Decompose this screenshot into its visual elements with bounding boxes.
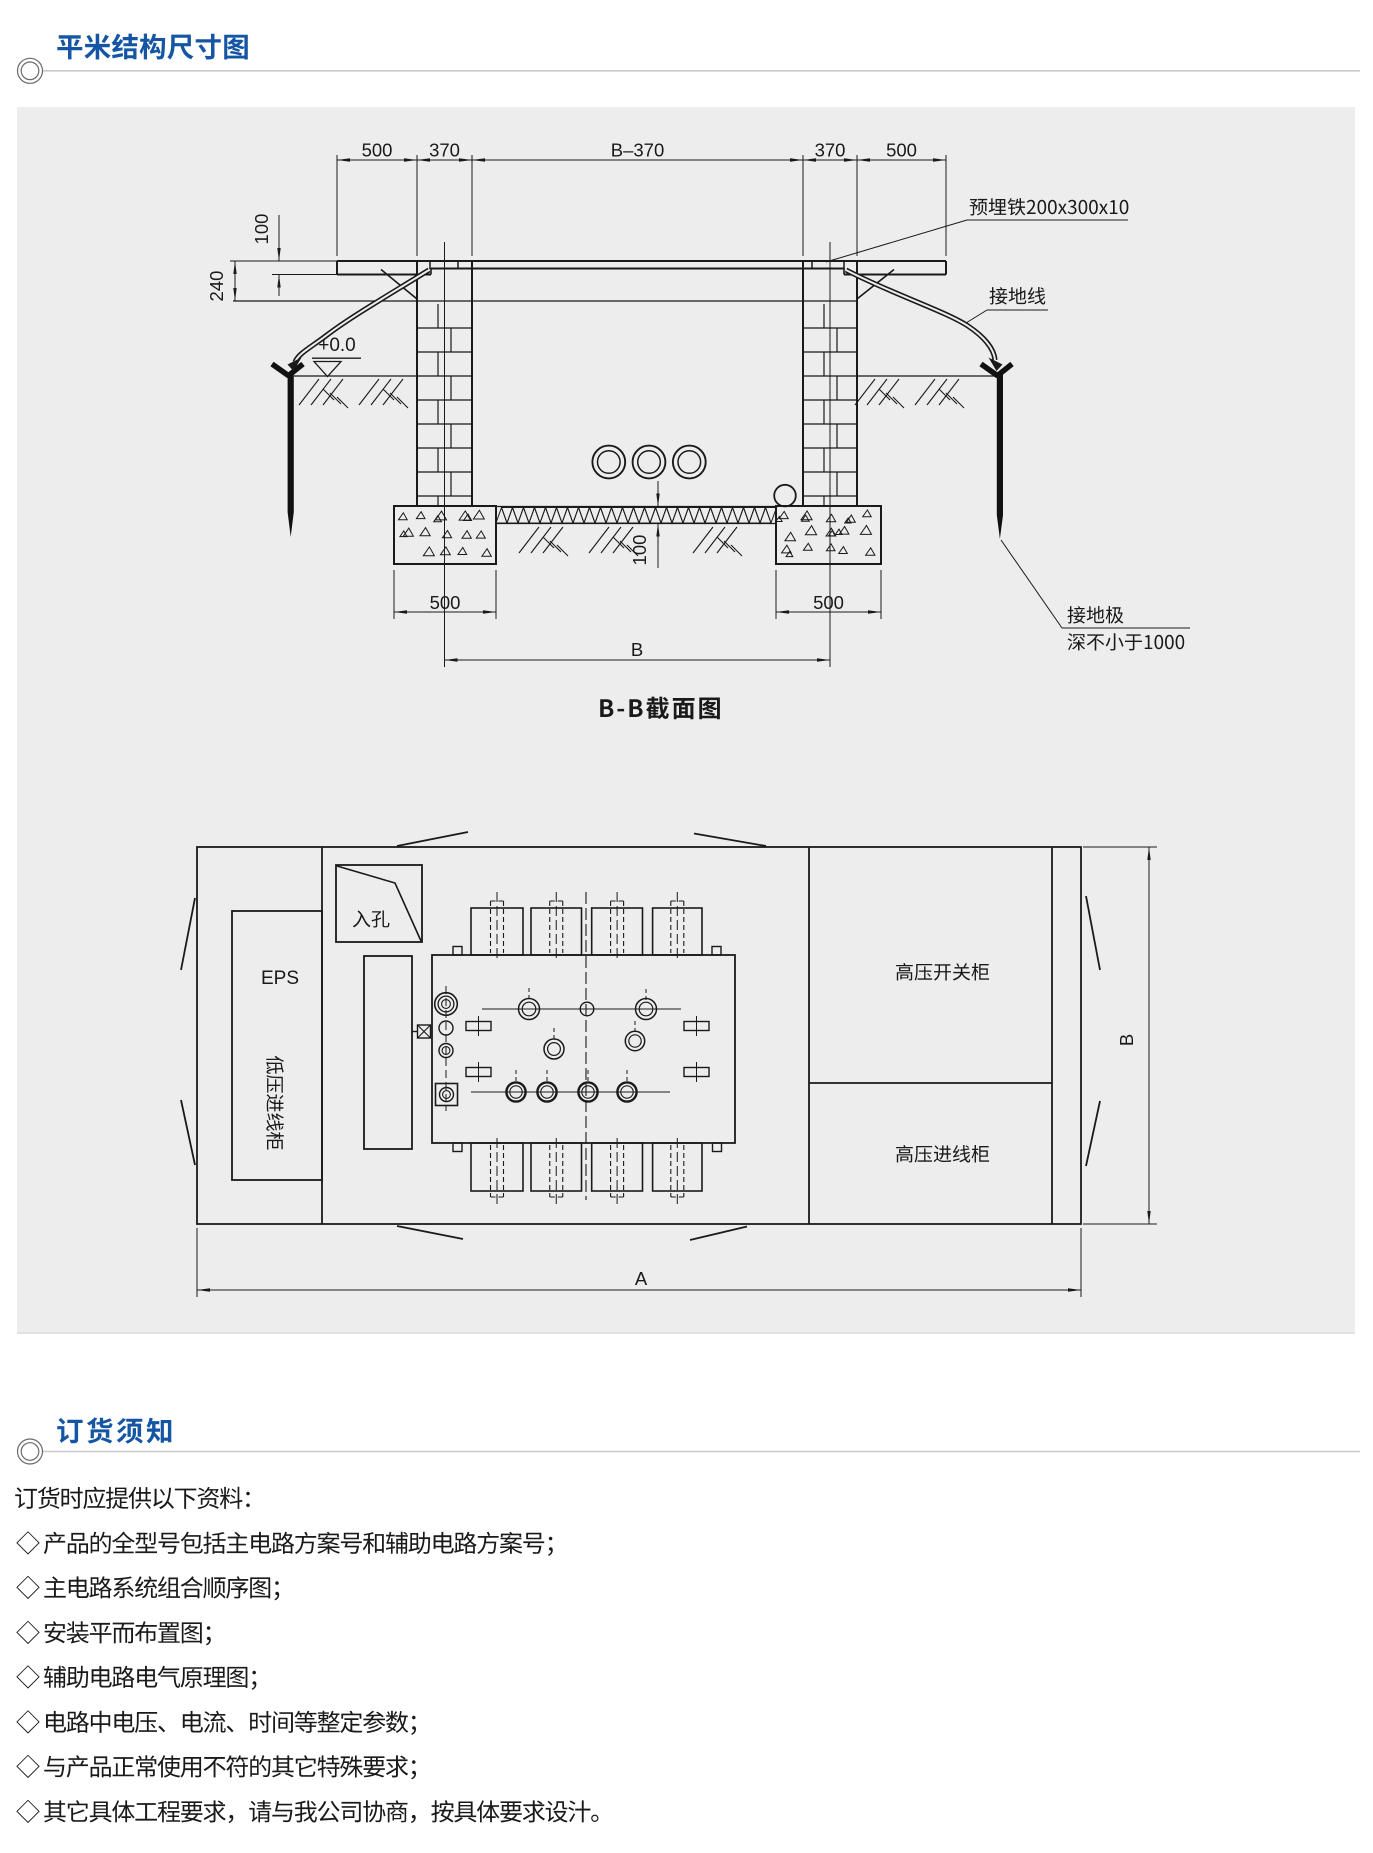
svg-text:500: 500: [430, 592, 461, 613]
svg-text:370: 370: [429, 140, 460, 161]
svg-text:EPS: EPS: [261, 968, 299, 989]
svg-text:100: 100: [251, 214, 272, 245]
svg-text:500: 500: [813, 592, 844, 613]
svg-text:370: 370: [815, 140, 846, 161]
svg-text:B: B: [1116, 1034, 1137, 1046]
svg-text:100: 100: [629, 535, 650, 566]
svg-text:A: A: [635, 1268, 648, 1289]
svg-text:B: B: [631, 639, 643, 660]
svg-text:500: 500: [886, 140, 917, 161]
svg-text:240: 240: [206, 271, 227, 302]
svg-text:500: 500: [362, 140, 393, 161]
svg-text:B–370: B–370: [611, 140, 665, 161]
svg-text:+0.0: +0.0: [318, 335, 356, 356]
